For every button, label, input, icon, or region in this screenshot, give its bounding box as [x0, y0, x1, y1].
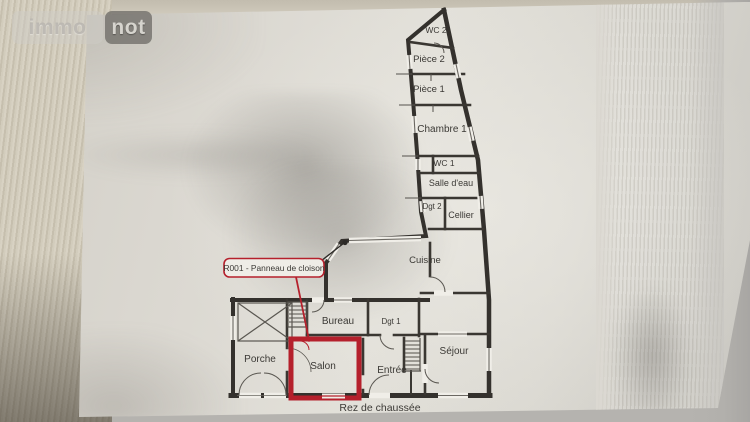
- room-label-salle-deau: Salle d'eau: [429, 178, 473, 188]
- site-watermark: immo not: [12, 11, 152, 44]
- room-label-piece1: Pièce 1: [413, 84, 445, 95]
- room-label-chambre1: Chambre 1: [417, 124, 467, 135]
- room-label-sejour: Séjour: [440, 346, 470, 357]
- room-label-bureau: Bureau: [322, 316, 354, 327]
- callout-label: R001 - Panneau de cloison: [223, 263, 324, 273]
- room-label-wc2: WC 2: [425, 25, 447, 35]
- room-label-salon: Salon: [310, 361, 336, 372]
- floorplan-drawing: R001 - Panneau de cloison WC 2 Pièce 2 P…: [0, 0, 750, 422]
- room-label-entree: Entrée: [377, 365, 407, 376]
- room-label-wc1: WC 1: [433, 158, 455, 168]
- porch-cross-box: [238, 303, 292, 341]
- room-label-cellier: Cellier: [448, 210, 474, 220]
- level-title: Rez de chaussée: [339, 402, 420, 414]
- room-label-dgt1: Dgt 1: [381, 317, 401, 326]
- room-label-porche: Porche: [244, 354, 276, 365]
- callout-partition-panel: R001 - Panneau de cloison: [223, 259, 324, 278]
- watermark-not: not: [105, 11, 152, 44]
- photo-of-floorplan: R001 - Panneau de cloison WC 2 Pièce 2 P…: [0, 0, 750, 422]
- watermark-immo: immo: [12, 11, 103, 44]
- room-label-piece2: Pièce 2: [413, 54, 445, 65]
- room-labels: WC 2 Pièce 2 Pièce 1 Chambre 1 WC 1 Sall…: [244, 25, 474, 376]
- room-label-cuisine: Cuisine: [409, 255, 441, 266]
- room-label-dgt2: Dgt 2: [422, 202, 442, 211]
